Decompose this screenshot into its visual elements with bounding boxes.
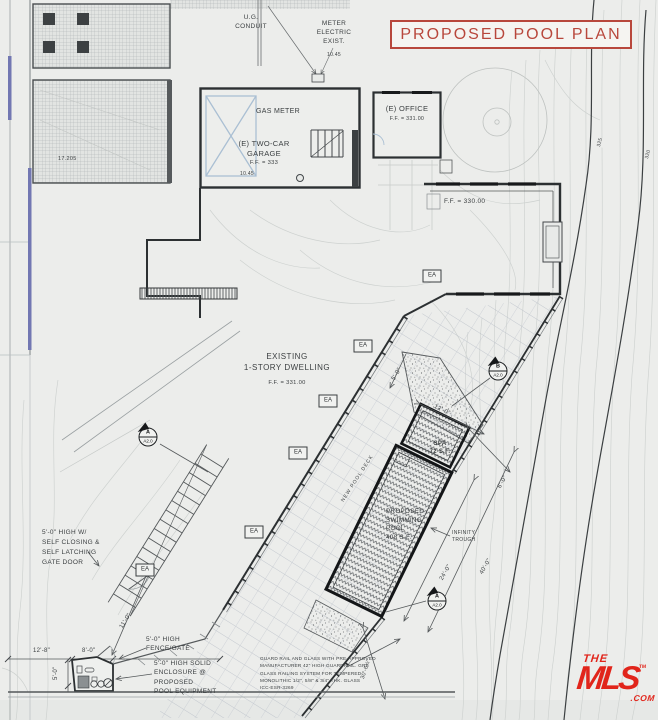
- ea-marker: EA: [136, 564, 155, 577]
- dim-10-45-b: 10.45: [240, 171, 254, 178]
- label-meter-electric: METER ELECTRIC EXIST.: [317, 20, 352, 46]
- section-sheet: A2.0: [429, 602, 446, 610]
- label-dwelling: EXISTING 1-STORY DWELLING: [244, 352, 330, 374]
- mls-logo-tm-icon: TM: [639, 664, 647, 670]
- dim-10-45-a: 10.45: [327, 52, 341, 59]
- section-marker-b: B A2.0: [489, 362, 508, 381]
- label-office: (E) OFFICE: [386, 104, 429, 114]
- dim-5-0: 5'-0": [52, 667, 60, 680]
- section-marker-a: A A2.0: [139, 428, 158, 447]
- label-garage: (E) TWO-CAR GARAGE: [238, 139, 289, 159]
- label-dwelling-ff: F.F. = 331.00: [268, 380, 305, 388]
- label-guardrail-note: GUARD RAIL AND GLASS WITH PRE-APPROVED M…: [260, 655, 376, 691]
- label-infinity-trough: INFINITY TROUGH: [452, 530, 475, 544]
- label-gas-meter: GAS METER: [256, 107, 300, 116]
- ea-marker: EA: [289, 447, 308, 460]
- label-wing-ff: F.F. = 330.00: [444, 198, 485, 207]
- section-marker-a2: A A2.0: [428, 592, 447, 611]
- ea-marker: EA: [423, 270, 442, 283]
- label-enclosure: 5'-0" HIGH SOLID ENCLOSURE @ PROPOSED PO…: [154, 659, 216, 697]
- label-fence-gate: 5'-0" HIGH FENCE/GATE: [146, 636, 190, 654]
- label-office-ff: F.F. = 331.00: [390, 116, 424, 123]
- pool-plan-page: PROPOSED POOL PLAN U.G. CONDUIT METER EL…: [0, 0, 658, 720]
- mls-logo: THEMLSTM .COM: [574, 654, 658, 702]
- plan-title: PROPOSED POOL PLAN: [390, 20, 632, 49]
- label-pool: PROPOSED SWIMMING POOL 408 S.F.: [386, 508, 424, 542]
- label-spa: SPA 72 S.F.: [430, 440, 451, 456]
- ea-marker: EA: [319, 395, 338, 408]
- label-gate-door: 5'-0" HIGH W/ SELF CLOSING & SELF LATCHI…: [42, 528, 100, 568]
- mls-logo-word: MLS: [575, 659, 640, 696]
- dim-12-8: 12'-8": [33, 647, 50, 655]
- ea-marker: EA: [354, 340, 373, 353]
- ea-marker: EA: [245, 526, 264, 539]
- section-letter: A: [140, 429, 157, 438]
- section-sheet: A2.0: [140, 438, 157, 446]
- section-sheet: A2.0: [490, 372, 507, 380]
- dim-8-0: 8'-0": [82, 647, 95, 655]
- section-letter: B: [490, 363, 507, 372]
- section-letter: A: [429, 593, 446, 602]
- label-ug-conduit: U.G. CONDUIT: [235, 14, 267, 32]
- dim-17-205: 17.205: [58, 156, 77, 163]
- label-garage-ff: F.F. = 333: [250, 160, 278, 168]
